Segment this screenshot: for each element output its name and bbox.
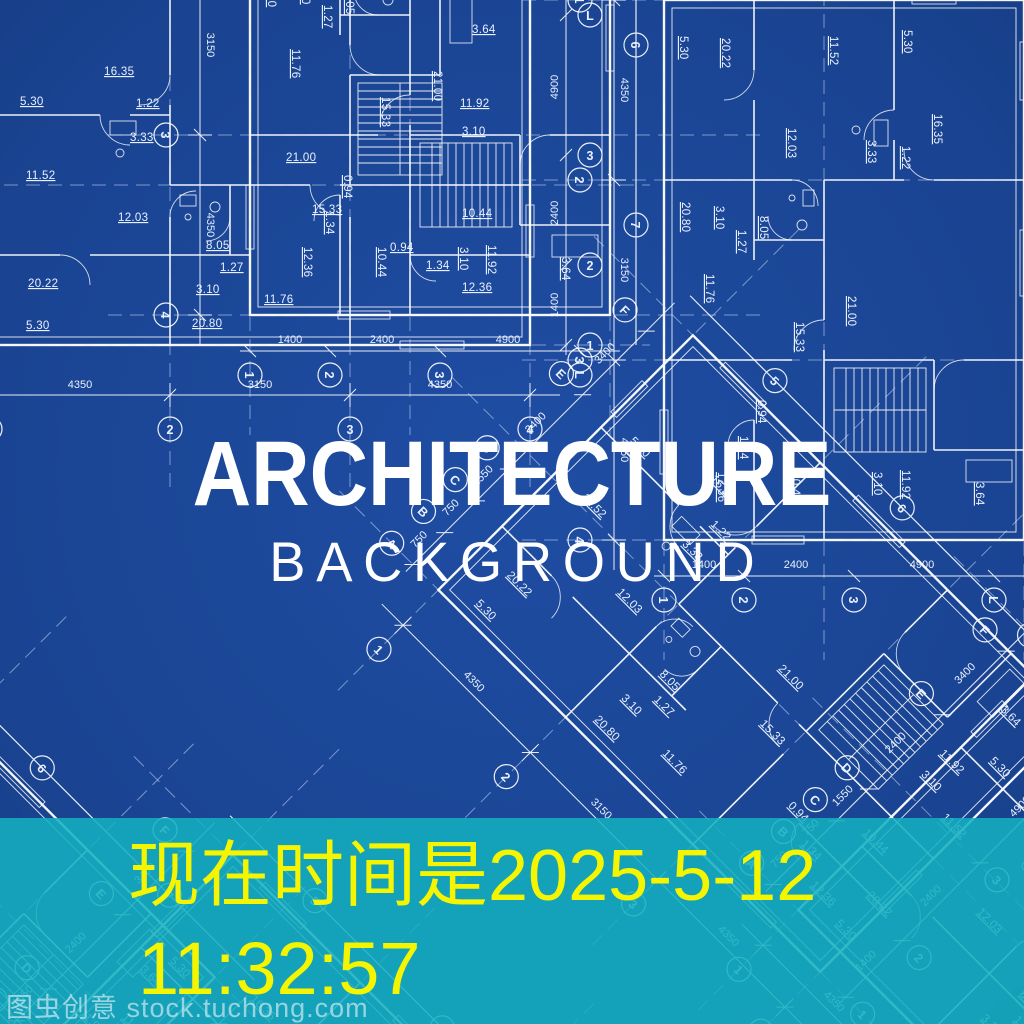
- time-overlay-line1: 现在时间是2025-5-12: [128, 836, 816, 916]
- time-overlay-line2: 11:32:57: [138, 928, 421, 1010]
- poster-canvas: 5.30 16.35 1.22 3.33 11.52 12.03 20.22 5…: [0, 0, 1024, 1024]
